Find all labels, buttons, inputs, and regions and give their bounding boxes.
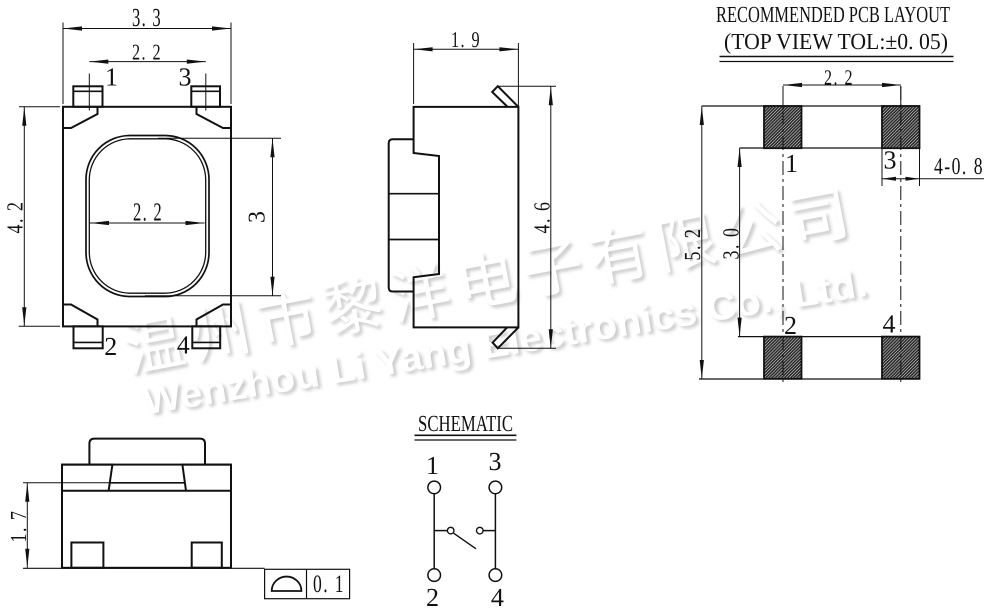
svg-text:4. 6: 4. 6 [529,201,554,234]
svg-text:2: 2 [784,311,797,340]
svg-text:5. 2: 5. 2 [680,228,705,261]
svg-text:1: 1 [426,451,439,480]
svg-text:3. 3: 3. 3 [132,3,162,32]
svg-text:3. 0: 3. 0 [718,227,743,260]
svg-text:3: 3 [884,146,897,175]
svg-text:3: 3 [245,211,271,223]
svg-text:2. 2: 2. 2 [133,198,163,227]
svg-text:2: 2 [426,583,439,611]
svg-text:1: 1 [785,149,798,178]
svg-text:(TOP VIEW TOL:±0. 05): (TOP VIEW TOL:±0. 05) [724,29,948,54]
svg-text:4: 4 [491,583,504,611]
svg-text:0. 1: 0. 1 [313,571,345,598]
svg-text:SCHEMATIC: SCHEMATIC [418,411,513,436]
svg-text:4: 4 [177,331,190,360]
svg-text:1. 7: 1. 7 [6,510,31,543]
svg-text:2. 2: 2. 2 [132,40,162,65]
svg-text:RECOMMENDED PCB LAYOUT: RECOMMENDED PCB LAYOUT [716,2,950,27]
svg-text:4-0. 8: 4-0. 8 [934,154,984,180]
svg-text:2. 2: 2. 2 [824,66,854,90]
svg-text:3: 3 [489,447,502,476]
svg-text:4: 4 [883,310,896,339]
svg-text:4. 2: 4. 2 [2,201,27,234]
svg-text:3: 3 [179,63,192,92]
svg-text:1: 1 [105,63,118,92]
svg-text:1. 9: 1. 9 [451,27,481,52]
svg-text:2: 2 [104,332,117,361]
